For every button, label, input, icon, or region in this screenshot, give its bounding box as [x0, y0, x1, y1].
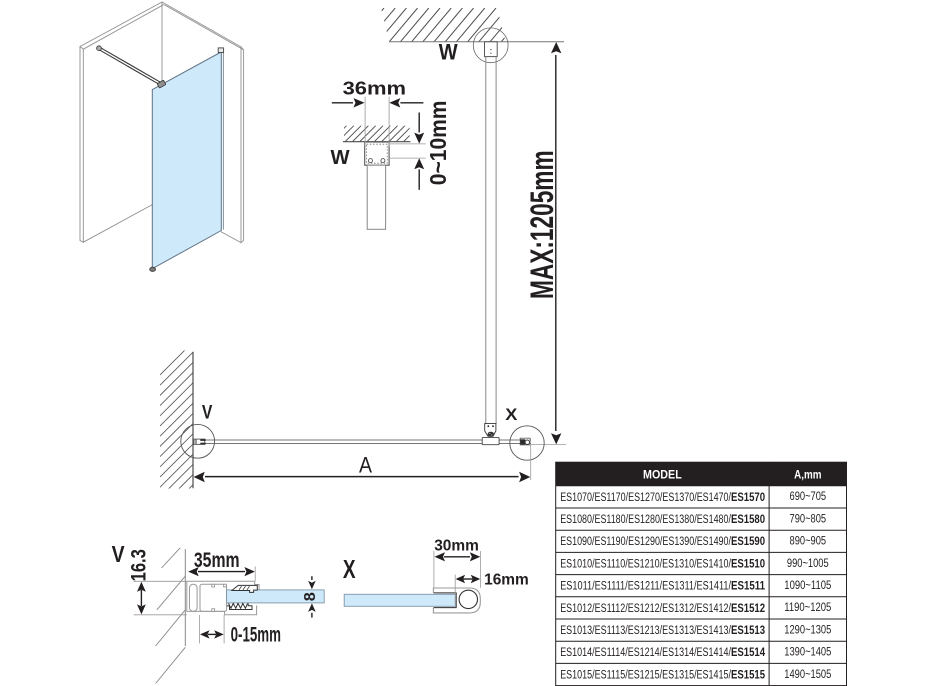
svg-text:1090~1105: 1090~1105 [784, 580, 831, 592]
svg-text:ES1511: ES1511 [731, 581, 766, 593]
svg-text:V: V [202, 403, 213, 424]
svg-text:ES1015/ES1115/ES1215/ES1315/ES: ES1015/ES1115/ES1215/ES1315/ES1415/ [560, 669, 731, 681]
svg-text:A,mm: A,mm [794, 468, 821, 482]
svg-text:ES1514: ES1514 [731, 647, 766, 659]
svg-text:16mm: 16mm [484, 571, 529, 588]
svg-text:A: A [359, 453, 372, 478]
svg-text:0~10mm: 0~10mm [425, 101, 451, 186]
svg-text:X: X [343, 554, 356, 584]
svg-text:ES1512: ES1512 [731, 603, 765, 615]
svg-text:ES1070/ES1170/ES1270/ES1370/ES: ES1070/ES1170/ES1270/ES1370/ES1470/ [560, 492, 731, 504]
svg-text:MODEL: MODEL [643, 468, 682, 482]
svg-text:X: X [505, 406, 517, 424]
svg-text:ES1090/ES1190/ES1290/ES1390/ES: ES1090/ES1190/ES1290/ES1390/ES1490/ [560, 536, 731, 548]
svg-text:ES1570: ES1570 [731, 492, 765, 504]
svg-text:ES1012/ES1112/ES1212/ES1312/ES: ES1012/ES1112/ES1212/ES1312/ES1412/ [560, 603, 731, 615]
svg-text:1390~1405: 1390~1405 [784, 647, 831, 659]
svg-text:790~805: 790~805 [790, 513, 827, 525]
svg-text:ES1580: ES1580 [731, 514, 765, 526]
svg-text:ES1080/ES1180/ES1280/ES1380/ES: ES1080/ES1180/ES1280/ES1380/ES1480/ [560, 514, 731, 526]
svg-text:ES1013/ES1113/ES1213/ES1313/ES: ES1013/ES1113/ES1213/ES1313/ES1413/ [560, 625, 731, 637]
svg-text:ES1590: ES1590 [731, 536, 765, 548]
svg-text:30mm: 30mm [434, 537, 479, 554]
svg-text:MAX:1205mm: MAX:1205mm [524, 150, 560, 299]
svg-text:W: W [331, 146, 351, 169]
svg-text:1290~1305: 1290~1305 [784, 624, 831, 636]
svg-text:8: 8 [302, 592, 319, 601]
svg-text:35mm: 35mm [194, 549, 240, 572]
svg-text:V: V [112, 541, 126, 567]
svg-text:W: W [439, 39, 458, 64]
svg-text:16.3: 16.3 [127, 549, 150, 581]
svg-text:1190~1205: 1190~1205 [784, 602, 831, 614]
svg-text:ES1515: ES1515 [731, 669, 766, 681]
svg-text:690~705: 690~705 [790, 491, 827, 503]
svg-text:ES1011/ES1111/ES1211/ES1311/ES: ES1011/ES1111/ES1211/ES1311/ES1411/ [560, 581, 731, 593]
svg-text:ES1010/ES1110/ES1210/ES1310/ES: ES1010/ES1110/ES1210/ES1310/ES1410/ [560, 558, 731, 570]
svg-text:ES1510: ES1510 [731, 558, 765, 570]
svg-text:990~1005: 990~1005 [787, 558, 829, 570]
svg-text:0-15mm: 0-15mm [231, 624, 281, 647]
svg-text:890~905: 890~905 [790, 536, 827, 548]
svg-text:36mm: 36mm [343, 78, 407, 99]
svg-text:1490~1505: 1490~1505 [784, 669, 831, 681]
svg-text:ES1513: ES1513 [731, 625, 765, 637]
svg-text:ES1014/ES1114/ES1214/ES1314/ES: ES1014/ES1114/ES1214/ES1314/ES1414/ [560, 647, 731, 659]
